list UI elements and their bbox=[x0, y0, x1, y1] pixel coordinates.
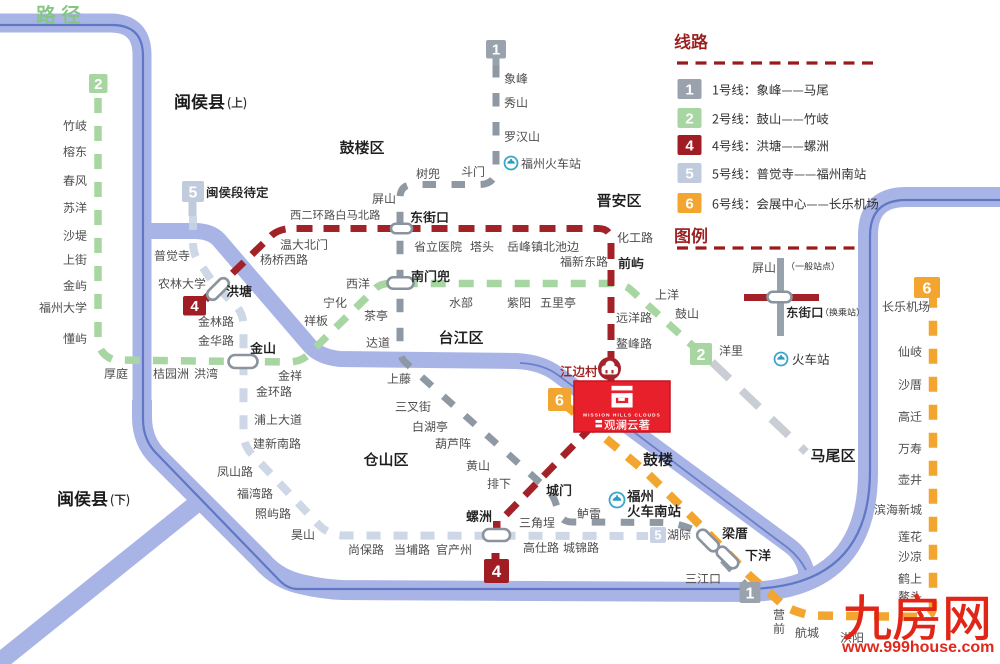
svg-text:2: 2 bbox=[697, 347, 706, 364]
svg-text:4: 4 bbox=[190, 298, 199, 315]
svg-text:2: 2 bbox=[685, 110, 693, 127]
svg-text:MISSION HILLS CLOUDS: MISSION HILLS CLOUDS bbox=[583, 413, 661, 418]
svg-text:4: 4 bbox=[492, 562, 502, 581]
svg-text:1: 1 bbox=[746, 585, 755, 602]
svg-text:5: 5 bbox=[654, 528, 661, 543]
svg-text:6: 6 bbox=[555, 392, 564, 409]
svg-text:5: 5 bbox=[685, 165, 693, 182]
svg-text:5: 5 bbox=[189, 184, 198, 201]
svg-text:www.999house.com: www.999house.com bbox=[841, 639, 994, 656]
svg-text:4: 4 bbox=[685, 137, 694, 154]
svg-text:1: 1 bbox=[492, 42, 500, 59]
svg-text:2: 2 bbox=[94, 76, 102, 93]
svg-text:6: 6 bbox=[685, 195, 693, 212]
svg-text:6: 6 bbox=[923, 280, 932, 297]
svg-text:1: 1 bbox=[685, 81, 693, 98]
